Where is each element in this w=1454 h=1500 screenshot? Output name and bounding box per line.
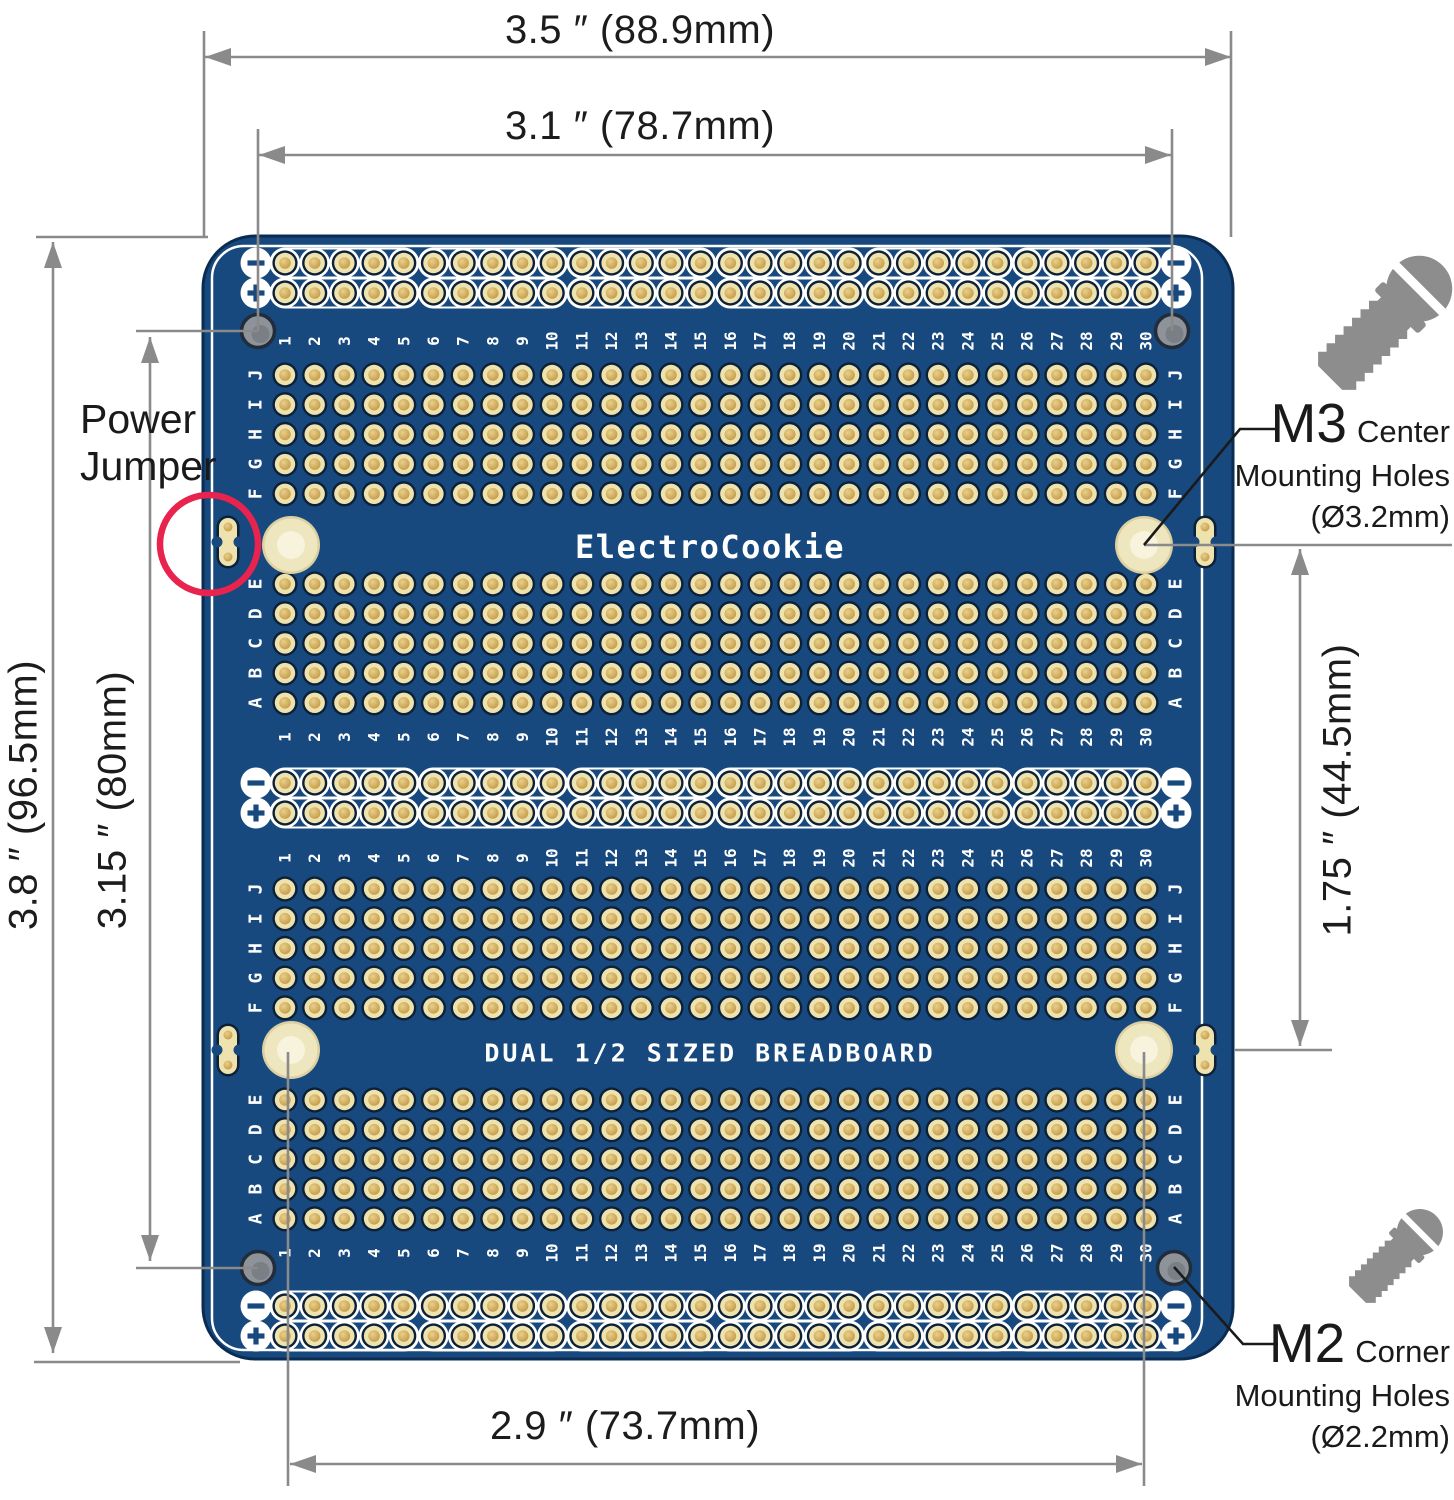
solder-hole [837, 1087, 862, 1112]
solder-hole [1044, 1206, 1069, 1231]
solder-hole [391, 690, 416, 715]
solder-hole [1074, 362, 1099, 387]
screw-icon [1339, 1198, 1454, 1313]
solder-hole [510, 690, 535, 715]
solder-hole [985, 876, 1010, 901]
solder-hole [569, 690, 594, 715]
rail-hole [361, 280, 386, 305]
column-number: 9 [513, 336, 532, 346]
solder-hole [807, 876, 832, 901]
solder-hole [955, 690, 980, 715]
rail-positive-symbol [241, 798, 272, 829]
solder-hole [391, 452, 416, 477]
rail-hole [955, 280, 980, 305]
solder-hole [866, 422, 891, 447]
power-jumper-label: Power Jumper [80, 396, 217, 490]
solder-hole [480, 966, 505, 991]
rail-hole [807, 770, 832, 795]
solder-hole [747, 1087, 772, 1112]
solder-hole [896, 631, 921, 656]
solder-hole [510, 481, 535, 506]
rail-hole [272, 770, 297, 795]
solder-hole [777, 1087, 802, 1112]
solder-hole [926, 1147, 951, 1172]
solder-hole [747, 392, 772, 417]
solder-hole [569, 392, 594, 417]
solder-hole [1104, 362, 1129, 387]
column-number: 8 [483, 732, 502, 742]
solder-hole [540, 1117, 565, 1142]
column-number: 29 [1107, 331, 1126, 350]
solder-hole [896, 571, 921, 596]
column-number: 17 [751, 1243, 770, 1262]
solder-hole [1104, 1087, 1129, 1112]
rail-negative-symbol [241, 248, 272, 279]
solder-hole [955, 936, 980, 961]
solder-hole [1074, 906, 1099, 931]
solder-hole [361, 966, 386, 991]
solder-hole [747, 876, 772, 901]
rail-hole [1133, 1293, 1158, 1318]
solder-hole [688, 690, 713, 715]
solder-hole [926, 392, 951, 417]
column-number: 24 [958, 331, 977, 350]
solder-hole [510, 392, 535, 417]
solder-hole [629, 452, 654, 477]
solder-hole [1104, 966, 1129, 991]
solder-hole [540, 601, 565, 626]
rail-hole [658, 1293, 683, 1318]
solder-hole [777, 481, 802, 506]
solder-hole [1044, 571, 1069, 596]
solder-hole [272, 661, 297, 686]
solder-hole [688, 1147, 713, 1172]
solder-hole [332, 1206, 357, 1231]
rail-negative-symbol [241, 768, 272, 799]
solder-hole [302, 631, 327, 656]
solder-hole [1133, 995, 1158, 1020]
rail-hole [451, 800, 476, 825]
solder-hole [837, 966, 862, 991]
solder-hole [837, 452, 862, 477]
rail-hole [658, 800, 683, 825]
solder-hole [599, 936, 624, 961]
rail-hole [688, 1293, 713, 1318]
column-number: 20 [840, 727, 859, 746]
solder-hole [1104, 601, 1129, 626]
solder-hole [747, 481, 772, 506]
solder-hole [480, 1117, 505, 1142]
solder-hole [688, 906, 713, 931]
solder-hole [718, 690, 743, 715]
column-number: 13 [632, 727, 651, 746]
solder-hole [985, 995, 1010, 1020]
solder-hole [540, 1147, 565, 1172]
solder-hole [777, 995, 802, 1020]
solder-hole [302, 1177, 327, 1202]
solder-hole [1133, 661, 1158, 686]
solder-hole [272, 690, 297, 715]
solder-hole [955, 1117, 980, 1142]
row-letter: J [1166, 884, 1187, 895]
solder-hole [688, 876, 713, 901]
solder-hole [332, 876, 357, 901]
solder-hole [540, 690, 565, 715]
rail-hole [629, 250, 654, 275]
column-number: 3 [335, 853, 354, 863]
column-number: 22 [899, 727, 918, 746]
solder-hole [540, 876, 565, 901]
solder-hole [629, 392, 654, 417]
m3-callout: M3Center Mounting Holes (Ø3.2mm) [1235, 396, 1450, 538]
solder-hole [1074, 661, 1099, 686]
solder-hole [629, 1087, 654, 1112]
board-label-text: DUAL 1/2 SIZED BREADBOARD [484, 1039, 935, 1068]
rail-hole [272, 280, 297, 305]
solder-hole [866, 936, 891, 961]
solder-hole [866, 966, 891, 991]
rail-hole [1074, 1293, 1099, 1318]
solder-hole [391, 481, 416, 506]
solder-hole [926, 1117, 951, 1142]
solder-hole [1133, 601, 1158, 626]
rail-hole [510, 250, 535, 275]
rail-hole [985, 250, 1010, 275]
rail-hole [361, 1323, 386, 1348]
rail-hole [451, 770, 476, 795]
solder-hole [421, 1147, 446, 1172]
column-number: 26 [1018, 848, 1037, 867]
solder-hole [866, 876, 891, 901]
solder-hole [361, 452, 386, 477]
solder-hole [332, 995, 357, 1020]
rail-hole [1044, 250, 1069, 275]
solder-hole [718, 571, 743, 596]
rail-hole [629, 770, 654, 795]
column-number: 30 [1137, 727, 1156, 746]
solder-hole [361, 362, 386, 387]
m2-code: M2 [1269, 1312, 1345, 1374]
row-letter: E [246, 1095, 267, 1106]
solder-hole [332, 601, 357, 626]
column-number: 12 [602, 727, 621, 746]
solder-hole [272, 422, 297, 447]
rail-hole [1104, 1323, 1129, 1348]
solder-hole [540, 422, 565, 447]
solder-hole [361, 876, 386, 901]
rail-hole [599, 1293, 624, 1318]
solder-hole [926, 452, 951, 477]
solder-hole [599, 392, 624, 417]
column-number: 6 [424, 336, 443, 346]
column-number: 27 [1047, 331, 1066, 350]
column-number: 9 [513, 1248, 532, 1258]
solder-hole [361, 422, 386, 447]
rail-hole [866, 770, 891, 795]
column-number: 19 [810, 1243, 829, 1262]
solder-hole [1044, 995, 1069, 1020]
solder-hole [718, 1177, 743, 1202]
solder-hole [718, 422, 743, 447]
solder-hole [272, 631, 297, 656]
solder-hole [599, 906, 624, 931]
solder-hole [451, 661, 476, 686]
solder-hole [837, 995, 862, 1020]
column-number: 5 [394, 853, 413, 863]
row-letter: D [246, 608, 267, 619]
rail-hole [272, 1323, 297, 1348]
solder-hole [866, 1177, 891, 1202]
solder-hole [302, 906, 327, 931]
solder-hole [302, 1206, 327, 1231]
solder-hole [807, 936, 832, 961]
solder-hole [955, 966, 980, 991]
solder-hole [510, 452, 535, 477]
column-number: 11 [572, 331, 591, 350]
solder-hole [421, 906, 446, 931]
solder-hole [361, 1147, 386, 1172]
solder-hole [1044, 631, 1069, 656]
solder-hole [1133, 631, 1158, 656]
solder-hole [837, 1177, 862, 1202]
solder-hole [510, 1117, 535, 1142]
solder-hole [361, 661, 386, 686]
solder-hole [480, 452, 505, 477]
solder-hole [658, 966, 683, 991]
solder-hole [629, 362, 654, 387]
solder-hole [272, 1087, 297, 1112]
column-number: 17 [751, 848, 770, 867]
rail-hole [777, 770, 802, 795]
solder-hole [540, 631, 565, 656]
solder-hole [747, 936, 772, 961]
solder-hole [1015, 1117, 1040, 1142]
rail-hole [1133, 770, 1158, 795]
rail-hole [332, 770, 357, 795]
solder-hole [896, 966, 921, 991]
solder-hole [1015, 1087, 1040, 1112]
solder-hole [1044, 936, 1069, 961]
solder-hole [926, 1206, 951, 1231]
solder-hole [777, 571, 802, 596]
solder-hole [985, 661, 1010, 686]
solder-hole [480, 571, 505, 596]
solder-hole [391, 1177, 416, 1202]
solder-hole [391, 362, 416, 387]
rail-hole [510, 800, 535, 825]
row-letter: J [1166, 370, 1187, 381]
solder-hole [1044, 392, 1069, 417]
solder-hole [1133, 906, 1158, 931]
rail-hole [658, 280, 683, 305]
column-number: 7 [454, 336, 473, 346]
solder-hole [837, 422, 862, 447]
solder-hole [1015, 690, 1040, 715]
solder-hole [599, 1117, 624, 1142]
solder-hole [985, 392, 1010, 417]
rail-hole [896, 280, 921, 305]
solder-hole [421, 362, 446, 387]
rail-hole [688, 800, 713, 825]
column-number: 10 [543, 848, 562, 867]
solder-hole [718, 1087, 743, 1112]
solder-hole [688, 392, 713, 417]
solder-hole [332, 906, 357, 931]
solder-hole [272, 362, 297, 387]
column-number: 16 [721, 848, 740, 867]
rail-hole [451, 280, 476, 305]
solder-hole [718, 392, 743, 417]
solder-hole [1133, 1206, 1158, 1231]
m3-center-mounting-hole [262, 1021, 320, 1079]
solder-hole [1044, 661, 1069, 686]
solder-hole [480, 936, 505, 961]
rail-hole [540, 770, 565, 795]
solder-hole [451, 1147, 476, 1172]
column-number: 1 [276, 732, 295, 742]
solder-hole [272, 936, 297, 961]
solder-hole [451, 690, 476, 715]
solder-hole [569, 452, 594, 477]
solder-hole [361, 1177, 386, 1202]
solder-hole [837, 1117, 862, 1142]
solder-hole [1015, 601, 1040, 626]
solder-hole [480, 661, 505, 686]
solder-hole [985, 966, 1010, 991]
solder-hole [480, 631, 505, 656]
rail-hole [540, 1293, 565, 1318]
solder-hole [1044, 690, 1069, 715]
inner-width-label: 3.1 ″ (78.7mm) [505, 104, 775, 149]
solder-hole [747, 422, 772, 447]
solder-hole [658, 481, 683, 506]
solder-hole [569, 966, 594, 991]
solder-hole [332, 631, 357, 656]
rail-hole [926, 280, 951, 305]
solder-hole [599, 1087, 624, 1112]
solder-hole [391, 631, 416, 656]
rail-hole [391, 1293, 416, 1318]
solder-hole [421, 392, 446, 417]
solder-hole [1074, 392, 1099, 417]
solder-hole [451, 481, 476, 506]
column-number: 14 [661, 331, 680, 350]
rail-hole [629, 280, 654, 305]
column-number: 23 [929, 727, 948, 746]
solder-hole [569, 481, 594, 506]
rail-positive-symbol [241, 278, 272, 309]
solder-hole [1133, 690, 1158, 715]
column-number: 22 [899, 848, 918, 867]
solder-hole [658, 995, 683, 1020]
solder-hole [866, 1087, 891, 1112]
rail-hole [451, 1293, 476, 1318]
rail-hole [688, 1323, 713, 1348]
rail-hole [1015, 280, 1040, 305]
solder-hole [807, 966, 832, 991]
solder-hole [837, 571, 862, 596]
solder-hole [421, 995, 446, 1020]
solder-hole [272, 966, 297, 991]
rail-hole [569, 250, 594, 275]
solder-hole [985, 906, 1010, 931]
column-number: 6 [424, 1248, 443, 1258]
row-letter: D [246, 1124, 267, 1135]
solder-hole [866, 1206, 891, 1231]
m3-code: M3 [1271, 392, 1347, 454]
solder-hole [599, 1147, 624, 1172]
rail-hole [1074, 1323, 1099, 1348]
solder-hole [1104, 1177, 1129, 1202]
solder-hole [866, 452, 891, 477]
solder-hole [747, 1117, 772, 1142]
solder-hole [629, 1117, 654, 1142]
column-number: 1 [276, 1248, 295, 1258]
solder-hole [658, 1177, 683, 1202]
rail-hole [480, 1323, 505, 1348]
rail-hole [421, 250, 446, 275]
solder-hole [540, 362, 565, 387]
overall-width-label: 3.5 ″ (88.9mm) [505, 8, 775, 53]
solder-hole [955, 876, 980, 901]
solder-hole [421, 1087, 446, 1112]
solder-hole [451, 1087, 476, 1112]
solder-hole [629, 422, 654, 447]
rail-hole [540, 1323, 565, 1348]
solder-hole [926, 362, 951, 387]
column-number: 15 [691, 331, 710, 350]
rail-hole [1044, 280, 1069, 305]
rail-hole [1015, 1293, 1040, 1318]
solder-hole [569, 661, 594, 686]
solder-hole [896, 481, 921, 506]
solder-hole [955, 631, 980, 656]
solder-hole [480, 906, 505, 931]
column-number: 18 [780, 331, 799, 350]
pcb-board-group: 1234567891011121314151617181920212223242… [203, 236, 1233, 1359]
solder-hole [896, 936, 921, 961]
row-letter: H [246, 943, 267, 954]
solder-hole [599, 661, 624, 686]
rail-hole [896, 800, 921, 825]
rail-hole [361, 770, 386, 795]
solder-hole [332, 392, 357, 417]
rail-hole [1044, 800, 1069, 825]
solder-hole [629, 995, 654, 1020]
solder-hole [391, 571, 416, 596]
rail-hole [747, 280, 772, 305]
solder-hole [332, 1087, 357, 1112]
rail-hole [837, 1323, 862, 1348]
rail-hole [332, 800, 357, 825]
solder-hole [361, 601, 386, 626]
column-number: 14 [661, 848, 680, 867]
rail-hole [688, 280, 713, 305]
solder-hole [391, 995, 416, 1020]
row-letter: B [246, 668, 267, 679]
rail-hole [599, 1323, 624, 1348]
column-number: 30 [1137, 848, 1156, 867]
solder-hole [777, 452, 802, 477]
rail-hole [480, 280, 505, 305]
solder-hole [629, 481, 654, 506]
column-number: 23 [929, 331, 948, 350]
rail-hole [1015, 800, 1040, 825]
solder-hole [777, 601, 802, 626]
rail-hole [302, 280, 327, 305]
row-letter: I [246, 399, 267, 410]
solder-hole [718, 876, 743, 901]
